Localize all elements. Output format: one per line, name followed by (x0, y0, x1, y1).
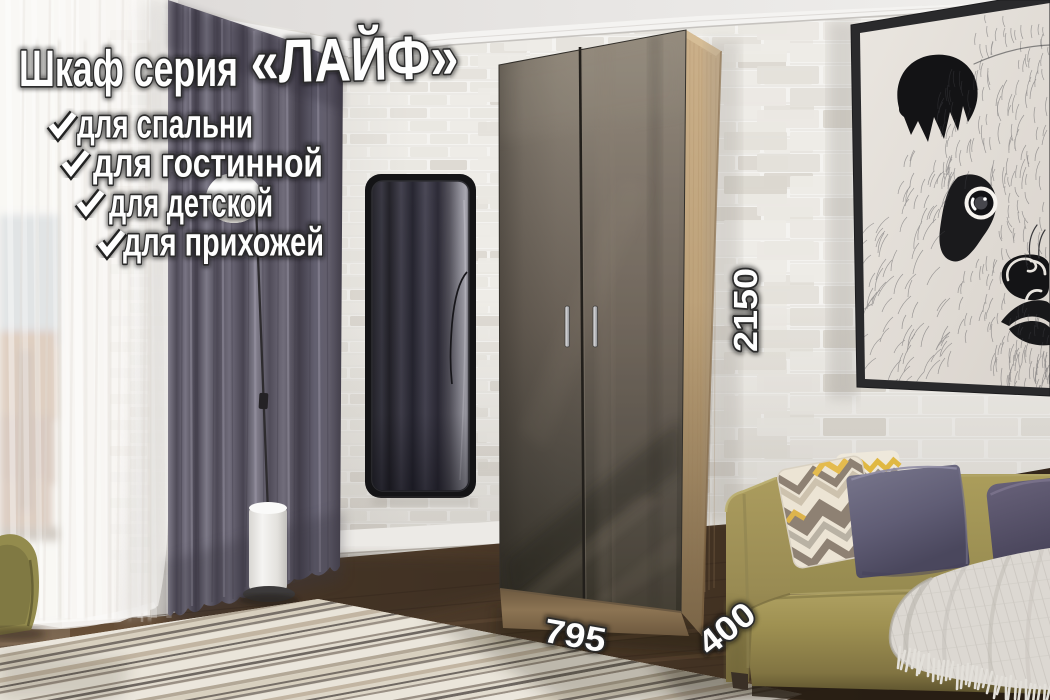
svg-text:для спальни: для спальни (77, 103, 253, 147)
svg-text:2150: 2150 (727, 268, 764, 352)
svg-text:для гостинной: для гостинной (93, 142, 323, 186)
svg-text:для детской: для детской (109, 181, 273, 225)
svg-text:«ЛАЙФ»: «ЛАЙФ» (250, 22, 460, 96)
svg-text:для прихожей: для прихожей (123, 220, 324, 264)
svg-text:Шкаф серия: Шкаф серия (19, 40, 238, 97)
